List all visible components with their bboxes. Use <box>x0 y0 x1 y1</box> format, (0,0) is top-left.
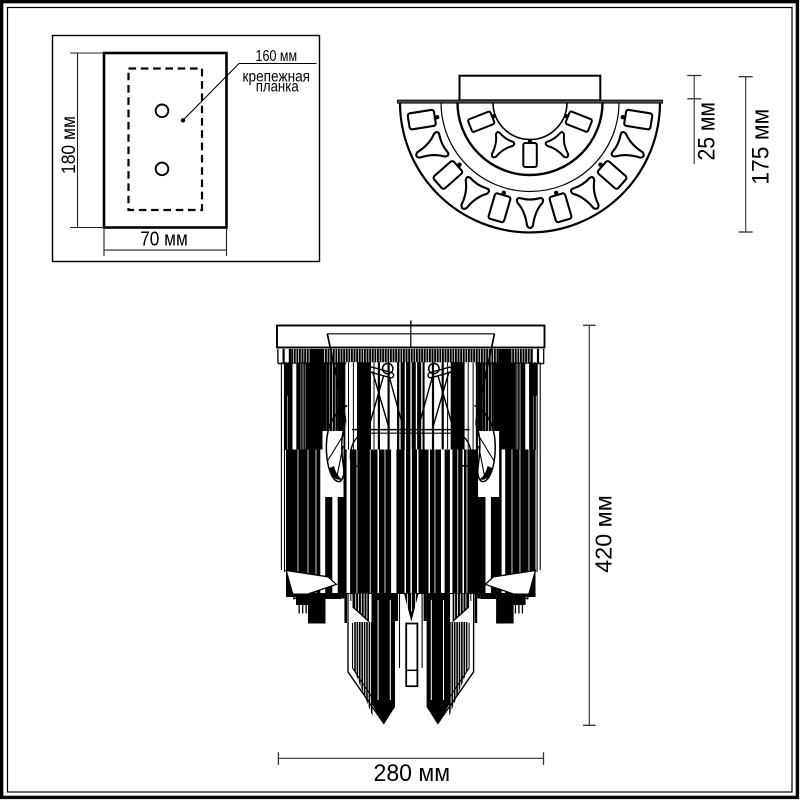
svg-text:планка: планка <box>256 79 299 96</box>
svg-text:25 мм: 25 мм <box>693 102 720 161</box>
svg-text:160 мм: 160 мм <box>256 48 298 65</box>
svg-text:70 мм: 70 мм <box>140 227 188 250</box>
svg-text:175 мм: 175 мм <box>747 109 774 185</box>
svg-text:280 мм: 280 мм <box>374 760 451 787</box>
svg-text:180 мм: 180 мм <box>58 116 80 174</box>
svg-text:420 мм: 420 мм <box>590 495 616 573</box>
